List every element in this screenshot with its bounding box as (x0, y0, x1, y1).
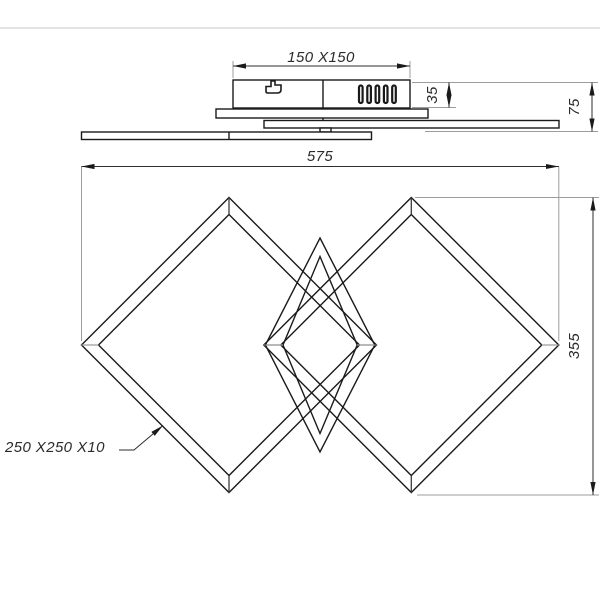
frame-edge-bar-1 (216, 109, 428, 118)
center-frame-diamond (265, 238, 374, 452)
dimension-canopy-size: 150 X150 (233, 49, 410, 78)
dimension-drawing: 150 X150 35 75 575 (0, 0, 600, 600)
left-frame-diamond (82, 198, 377, 493)
side-view: 150 X150 35 75 (82, 49, 599, 140)
frame-edge-bar-2 (264, 121, 559, 129)
right-frame-diamond (264, 198, 559, 493)
total-width-label: 575 (307, 148, 333, 165)
frame-edge-bar-3 (82, 132, 372, 140)
canopy-size-label: 150 X150 (287, 49, 355, 66)
drawing-svg: 150 X150 35 75 575 (0, 0, 600, 600)
frame-spec-callout: 250 X250 X10 (4, 426, 163, 457)
frame-spec-leader-line (119, 426, 163, 451)
dimension-total-width: 575 (82, 148, 559, 341)
front-view: 575 (4, 148, 599, 495)
total-depth-label: 355 (566, 333, 583, 359)
frame-spec-label: 250 X250 X10 (4, 439, 105, 456)
total-height-label: 75 (566, 98, 583, 116)
canopy-height-label: 35 (424, 86, 441, 104)
dimension-total-depth: 355 (415, 198, 599, 496)
